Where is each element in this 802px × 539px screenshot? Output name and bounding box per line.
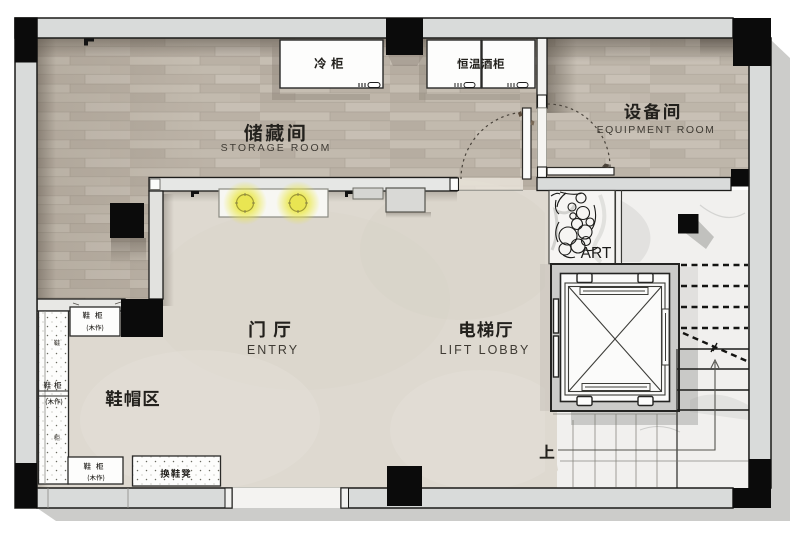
svg-text:STORAGE ROOM: STORAGE ROOM [221, 142, 332, 154]
svg-text:ENTRY: ENTRY [247, 343, 299, 357]
svg-text:EQUIPMENT ROOM: EQUIPMENT ROOM [597, 124, 716, 136]
svg-text:ART: ART [581, 245, 612, 262]
svg-text:LIFT LOBBY: LIFT LOBBY [440, 343, 531, 357]
